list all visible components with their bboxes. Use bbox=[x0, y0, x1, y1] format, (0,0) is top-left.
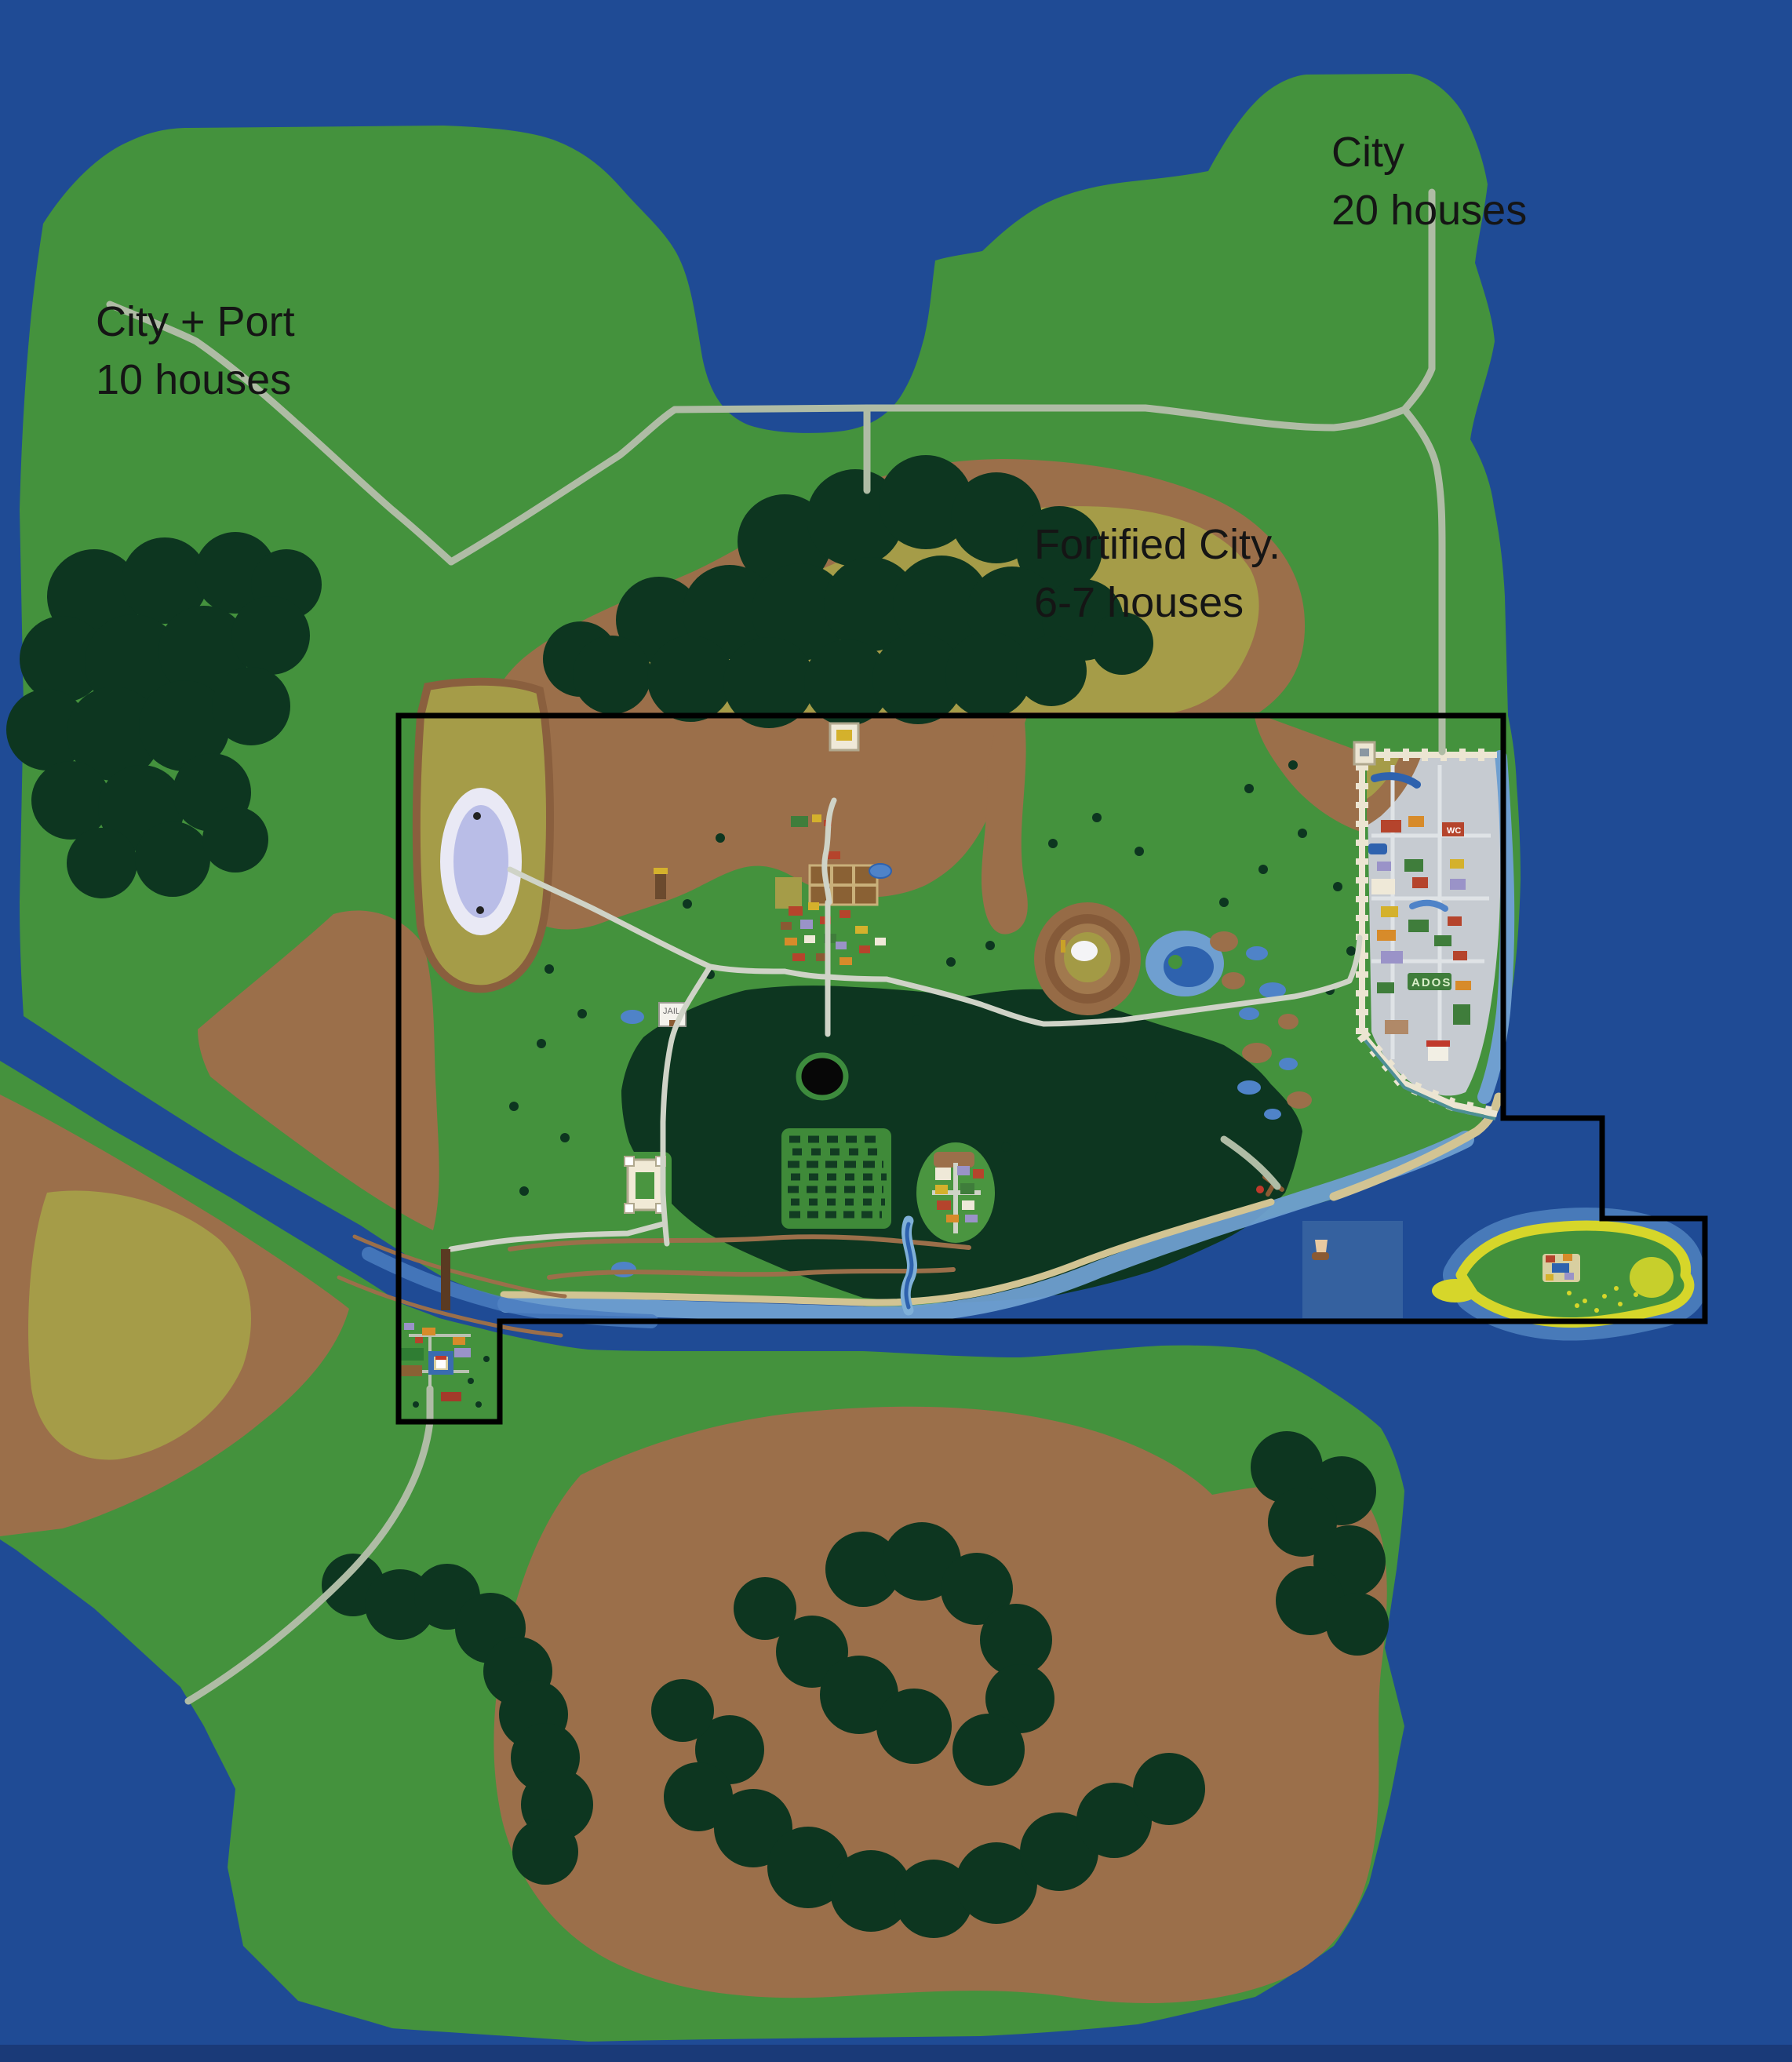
annotation-city-ne-line2: 20 houses bbox=[1331, 187, 1527, 234]
hedge-maze bbox=[781, 1128, 891, 1229]
ados-garden-sign: ADOS bbox=[1408, 973, 1451, 990]
annotation-city-port-line1: City + Port bbox=[96, 298, 295, 345]
forest-town bbox=[916, 1142, 995, 1243]
village-church bbox=[428, 1351, 453, 1375]
annotation-city-port-line2: 10 houses bbox=[96, 356, 291, 403]
farm-pond bbox=[869, 864, 891, 878]
world-map: JAIL bbox=[0, 0, 1792, 2062]
deep-sea-strip bbox=[0, 2045, 1792, 2062]
map-chunk-overlay bbox=[1302, 1221, 1403, 1318]
river-bridge bbox=[441, 1249, 450, 1310]
mountain-lake bbox=[440, 788, 522, 935]
west-pond bbox=[621, 1010, 644, 1024]
small-fort bbox=[830, 723, 858, 750]
annotation-city-ne-line1: City bbox=[1331, 129, 1404, 176]
coast-pond bbox=[611, 1262, 636, 1277]
annotation-fortified-line2: 6-7 houses bbox=[1034, 579, 1244, 626]
city-church bbox=[1426, 1040, 1450, 1061]
city-wc-building: WC bbox=[1442, 822, 1464, 836]
island bbox=[1432, 1226, 1689, 1322]
island-village bbox=[1543, 1254, 1580, 1282]
olive-field bbox=[775, 877, 802, 909]
world-map-screenshot: JAIL bbox=[0, 0, 1792, 2062]
snow-cap bbox=[1071, 941, 1098, 961]
forest-dark-hole bbox=[799, 1055, 846, 1098]
jail-label: JAIL bbox=[663, 1007, 680, 1016]
snow-capped-hill bbox=[1034, 902, 1141, 1015]
wc-label: WC bbox=[1447, 826, 1461, 836]
ados-label: ADOS bbox=[1411, 976, 1451, 989]
wizard-tower bbox=[654, 868, 668, 899]
annotation-fortified-line1: Fortified City. bbox=[1034, 521, 1280, 568]
